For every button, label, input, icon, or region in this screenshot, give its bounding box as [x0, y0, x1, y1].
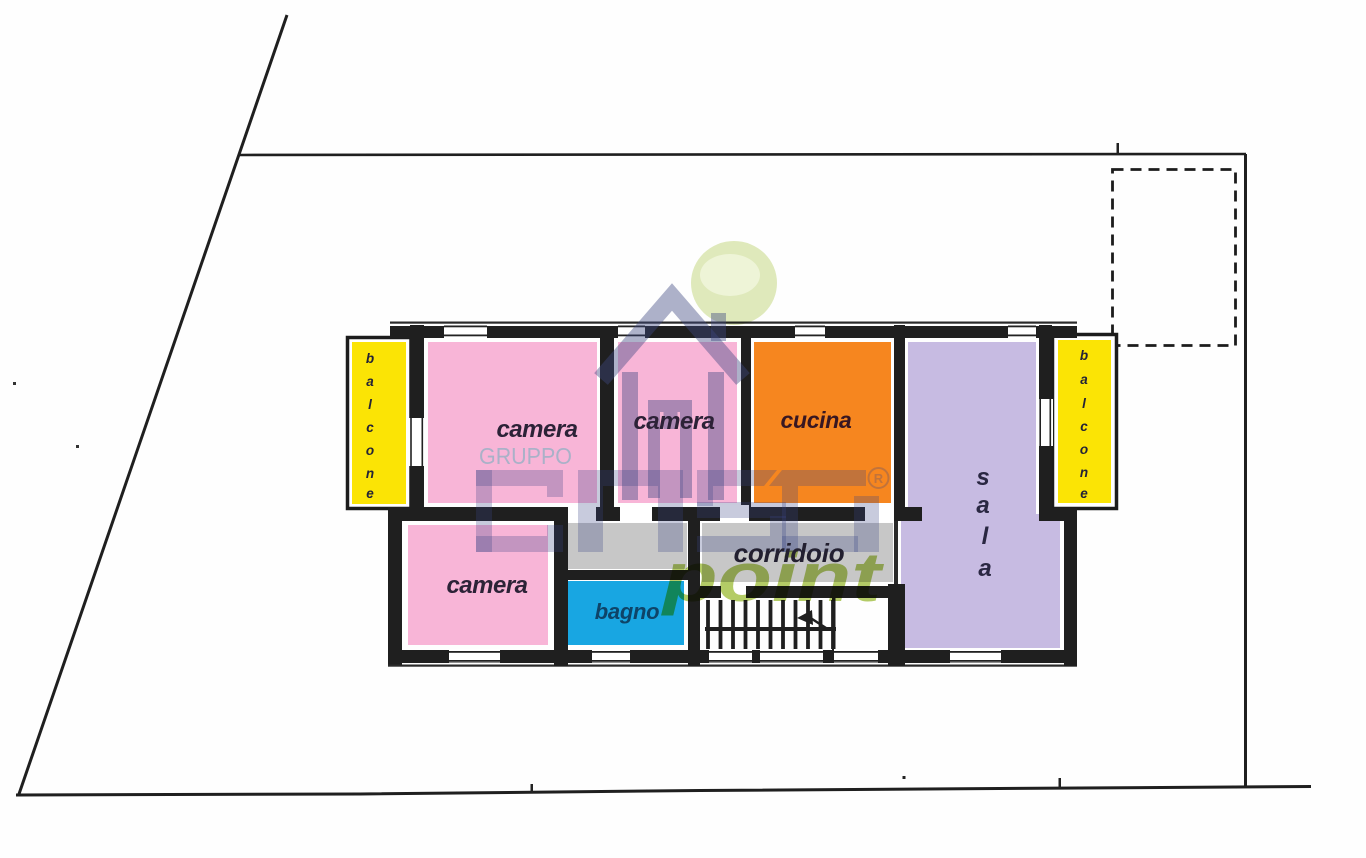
svg-text:camera: camera — [446, 572, 527, 599]
svg-text:GRUPPO: GRUPPO — [479, 443, 572, 469]
svg-text:bagno: bagno — [595, 599, 660, 624]
svg-text:cucina: cucina — [780, 407, 852, 433]
svg-text:a: a — [366, 374, 374, 389]
svg-text:o: o — [366, 443, 374, 458]
svg-text:camera: camera — [496, 416, 577, 443]
svg-text:n: n — [1080, 465, 1088, 480]
svg-text:c: c — [1080, 419, 1088, 434]
svg-text:c: c — [366, 420, 374, 435]
svg-text:s: s — [976, 464, 989, 491]
svg-text:l: l — [1082, 396, 1086, 411]
svg-text:n: n — [366, 466, 374, 481]
svg-text:b: b — [366, 351, 374, 366]
svg-text:a: a — [976, 492, 989, 519]
svg-text:camera: camera — [633, 408, 714, 435]
svg-text:l: l — [368, 397, 372, 412]
svg-text:e: e — [366, 486, 374, 501]
svg-text:e: e — [1080, 486, 1088, 501]
svg-text:a: a — [978, 555, 991, 582]
svg-text:b: b — [1080, 348, 1088, 363]
svg-text:o: o — [1080, 442, 1088, 457]
svg-text:a: a — [1080, 372, 1088, 387]
svg-text:corridoio: corridoio — [734, 538, 845, 568]
svg-text:R: R — [874, 471, 884, 486]
